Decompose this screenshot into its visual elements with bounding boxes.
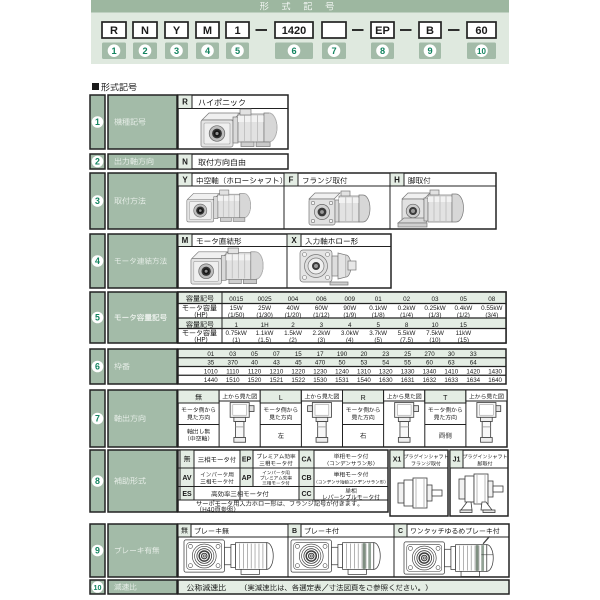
svg-text:7: 7 bbox=[95, 414, 100, 424]
svg-text:1120: 1120 bbox=[248, 368, 262, 375]
svg-text:25: 25 bbox=[404, 351, 411, 358]
svg-text:1340: 1340 bbox=[423, 368, 437, 375]
svg-text:4: 4 bbox=[348, 322, 352, 329]
svg-text:5: 5 bbox=[376, 322, 380, 329]
svg-text:1330: 1330 bbox=[401, 368, 415, 375]
svg-text:1440: 1440 bbox=[204, 377, 218, 384]
svg-text:10: 10 bbox=[431, 322, 439, 329]
svg-text:1634: 1634 bbox=[466, 377, 480, 384]
svg-text:(1/4): (1/4) bbox=[400, 312, 413, 319]
svg-text:(1/8): (1/8) bbox=[372, 312, 385, 319]
svg-text:43: 43 bbox=[273, 360, 280, 367]
svg-text:15: 15 bbox=[295, 351, 302, 358]
svg-text:CA: CA bbox=[301, 457, 311, 464]
svg-text:1: 1 bbox=[95, 117, 100, 127]
svg-text:B: B bbox=[426, 25, 434, 37]
svg-text:60: 60 bbox=[426, 360, 433, 367]
svg-text:2: 2 bbox=[142, 46, 147, 56]
svg-text:1640: 1640 bbox=[488, 377, 502, 384]
svg-text:8: 8 bbox=[380, 46, 385, 56]
svg-text:1220: 1220 bbox=[291, 368, 305, 375]
svg-text:0015: 0015 bbox=[229, 296, 244, 303]
svg-text:1531: 1531 bbox=[335, 377, 349, 384]
svg-text:1510: 1510 bbox=[226, 377, 240, 384]
svg-text:(2): (2) bbox=[289, 337, 297, 344]
svg-text:R: R bbox=[182, 98, 188, 107]
svg-text:64: 64 bbox=[470, 360, 477, 367]
svg-text:(15): (15) bbox=[458, 337, 469, 344]
svg-text:4: 4 bbox=[95, 256, 100, 266]
svg-text:009: 009 bbox=[345, 296, 356, 303]
svg-text:(1/12): (1/12) bbox=[313, 312, 329, 319]
svg-text:63: 63 bbox=[448, 360, 455, 367]
svg-text:1H: 1H bbox=[261, 322, 270, 329]
svg-text:3: 3 bbox=[174, 46, 179, 56]
svg-text:CC: CC bbox=[301, 491, 311, 498]
svg-text:17: 17 bbox=[317, 351, 324, 358]
svg-text:(1/30): (1/30) bbox=[256, 312, 272, 319]
svg-text:Y: Y bbox=[173, 25, 181, 37]
svg-text:R: R bbox=[110, 25, 118, 37]
svg-text:33: 33 bbox=[470, 351, 477, 358]
svg-text:(10): (10) bbox=[429, 337, 440, 344]
svg-text:(3/4): (3/4) bbox=[485, 312, 498, 319]
svg-text:(1.5): (1.5) bbox=[258, 337, 271, 344]
svg-text:5: 5 bbox=[235, 46, 240, 56]
svg-text:270: 270 bbox=[424, 351, 435, 358]
svg-text:Y: Y bbox=[182, 175, 188, 184]
svg-text:3: 3 bbox=[95, 196, 100, 206]
svg-text:M: M bbox=[203, 25, 212, 37]
svg-text:1633: 1633 bbox=[444, 377, 458, 384]
svg-text:1530: 1530 bbox=[313, 377, 327, 384]
svg-text:ES: ES bbox=[182, 491, 192, 498]
svg-text:(1/20): (1/20) bbox=[285, 312, 301, 319]
svg-text:1630: 1630 bbox=[379, 377, 393, 384]
svg-text:8: 8 bbox=[95, 476, 100, 486]
svg-text:(7.5): (7.5) bbox=[400, 337, 413, 344]
svg-text:9: 9 bbox=[427, 46, 432, 56]
svg-text:10: 10 bbox=[477, 47, 486, 56]
svg-text:(5): (5) bbox=[374, 337, 382, 344]
svg-text:EP: EP bbox=[375, 25, 390, 37]
svg-text:20: 20 bbox=[360, 351, 367, 358]
svg-text:C: C bbox=[398, 528, 403, 535]
svg-text:53: 53 bbox=[360, 360, 367, 367]
svg-text:30: 30 bbox=[448, 351, 455, 358]
svg-text:1320: 1320 bbox=[379, 368, 393, 375]
svg-text:1522: 1522 bbox=[291, 377, 305, 384]
svg-text:M: M bbox=[182, 236, 189, 245]
svg-text:370: 370 bbox=[228, 360, 239, 367]
svg-text:07: 07 bbox=[273, 351, 280, 358]
svg-text:(4): (4) bbox=[346, 337, 354, 344]
svg-text:03: 03 bbox=[229, 351, 236, 358]
svg-text:2: 2 bbox=[95, 157, 100, 167]
svg-text:3: 3 bbox=[320, 322, 324, 329]
svg-text:03: 03 bbox=[431, 296, 439, 303]
svg-text:1230: 1230 bbox=[313, 368, 327, 375]
svg-text:006: 006 bbox=[316, 296, 327, 303]
svg-text:6: 6 bbox=[291, 46, 296, 56]
svg-text:23: 23 bbox=[382, 351, 389, 358]
svg-text:1521: 1521 bbox=[270, 377, 284, 384]
svg-text:1540: 1540 bbox=[357, 377, 371, 384]
svg-text:2: 2 bbox=[291, 322, 295, 329]
svg-text:1420: 1420 bbox=[466, 368, 480, 375]
svg-text:6: 6 bbox=[95, 362, 100, 372]
svg-text:AP: AP bbox=[242, 475, 252, 482]
svg-text:1: 1 bbox=[111, 46, 116, 56]
svg-text:190: 190 bbox=[337, 351, 348, 358]
svg-text:0025: 0025 bbox=[258, 296, 273, 303]
svg-text:1240: 1240 bbox=[335, 368, 349, 375]
svg-text:01: 01 bbox=[375, 296, 383, 303]
svg-text:470: 470 bbox=[315, 360, 326, 367]
svg-text:9: 9 bbox=[95, 546, 100, 556]
svg-text:AV: AV bbox=[182, 475, 192, 482]
svg-text:60: 60 bbox=[475, 25, 487, 37]
svg-text:1210: 1210 bbox=[270, 368, 284, 375]
svg-text:08: 08 bbox=[488, 296, 496, 303]
svg-text:01: 01 bbox=[207, 351, 214, 358]
svg-text:10: 10 bbox=[94, 583, 102, 592]
svg-text:54: 54 bbox=[382, 360, 389, 367]
svg-text:15: 15 bbox=[460, 322, 468, 329]
svg-text:J1: J1 bbox=[453, 457, 461, 464]
svg-text:35: 35 bbox=[207, 360, 214, 367]
svg-text:B: B bbox=[292, 528, 297, 535]
svg-text:(3): (3) bbox=[318, 337, 326, 344]
svg-text:N: N bbox=[141, 25, 149, 37]
svg-text:L: L bbox=[279, 395, 283, 402]
svg-text:1420: 1420 bbox=[282, 25, 306, 37]
svg-text:H: H bbox=[394, 175, 400, 184]
svg-text:1410: 1410 bbox=[444, 368, 458, 375]
svg-text:004: 004 bbox=[288, 296, 299, 303]
svg-text:R: R bbox=[361, 395, 366, 402]
svg-text:1010: 1010 bbox=[204, 368, 218, 375]
svg-text:55: 55 bbox=[404, 360, 411, 367]
svg-text:05: 05 bbox=[460, 296, 468, 303]
svg-text:8: 8 bbox=[405, 322, 409, 329]
svg-text:1: 1 bbox=[234, 25, 240, 37]
svg-text:N: N bbox=[182, 157, 188, 166]
svg-text:X1: X1 bbox=[393, 457, 402, 464]
svg-text:F: F bbox=[289, 175, 294, 184]
svg-text:4: 4 bbox=[205, 46, 211, 56]
svg-text:T: T bbox=[443, 395, 448, 402]
svg-text:(1/2): (1/2) bbox=[457, 312, 470, 319]
svg-text:(1/3): (1/3) bbox=[429, 312, 442, 319]
svg-text:5: 5 bbox=[95, 313, 100, 323]
svg-text:1110: 1110 bbox=[226, 368, 239, 375]
svg-text:1520: 1520 bbox=[248, 377, 262, 384]
svg-text:(1/9): (1/9) bbox=[343, 312, 356, 319]
svg-text:02: 02 bbox=[403, 296, 411, 303]
svg-text:05: 05 bbox=[251, 351, 258, 358]
svg-text:EP: EP bbox=[242, 457, 252, 464]
svg-text:1631: 1631 bbox=[401, 377, 415, 384]
svg-text:X: X bbox=[291, 236, 297, 245]
svg-text:(1): (1) bbox=[232, 337, 240, 344]
svg-text:50: 50 bbox=[339, 360, 346, 367]
svg-text:1310: 1310 bbox=[357, 368, 371, 375]
svg-text:45: 45 bbox=[295, 360, 302, 367]
svg-text:CB: CB bbox=[301, 475, 311, 482]
svg-text:40: 40 bbox=[251, 360, 258, 367]
svg-text:1632: 1632 bbox=[423, 377, 437, 384]
svg-text:(1/50): (1/50) bbox=[228, 312, 244, 319]
svg-text:1430: 1430 bbox=[488, 368, 502, 375]
svg-text:1: 1 bbox=[234, 322, 238, 329]
svg-text:7: 7 bbox=[331, 46, 336, 56]
